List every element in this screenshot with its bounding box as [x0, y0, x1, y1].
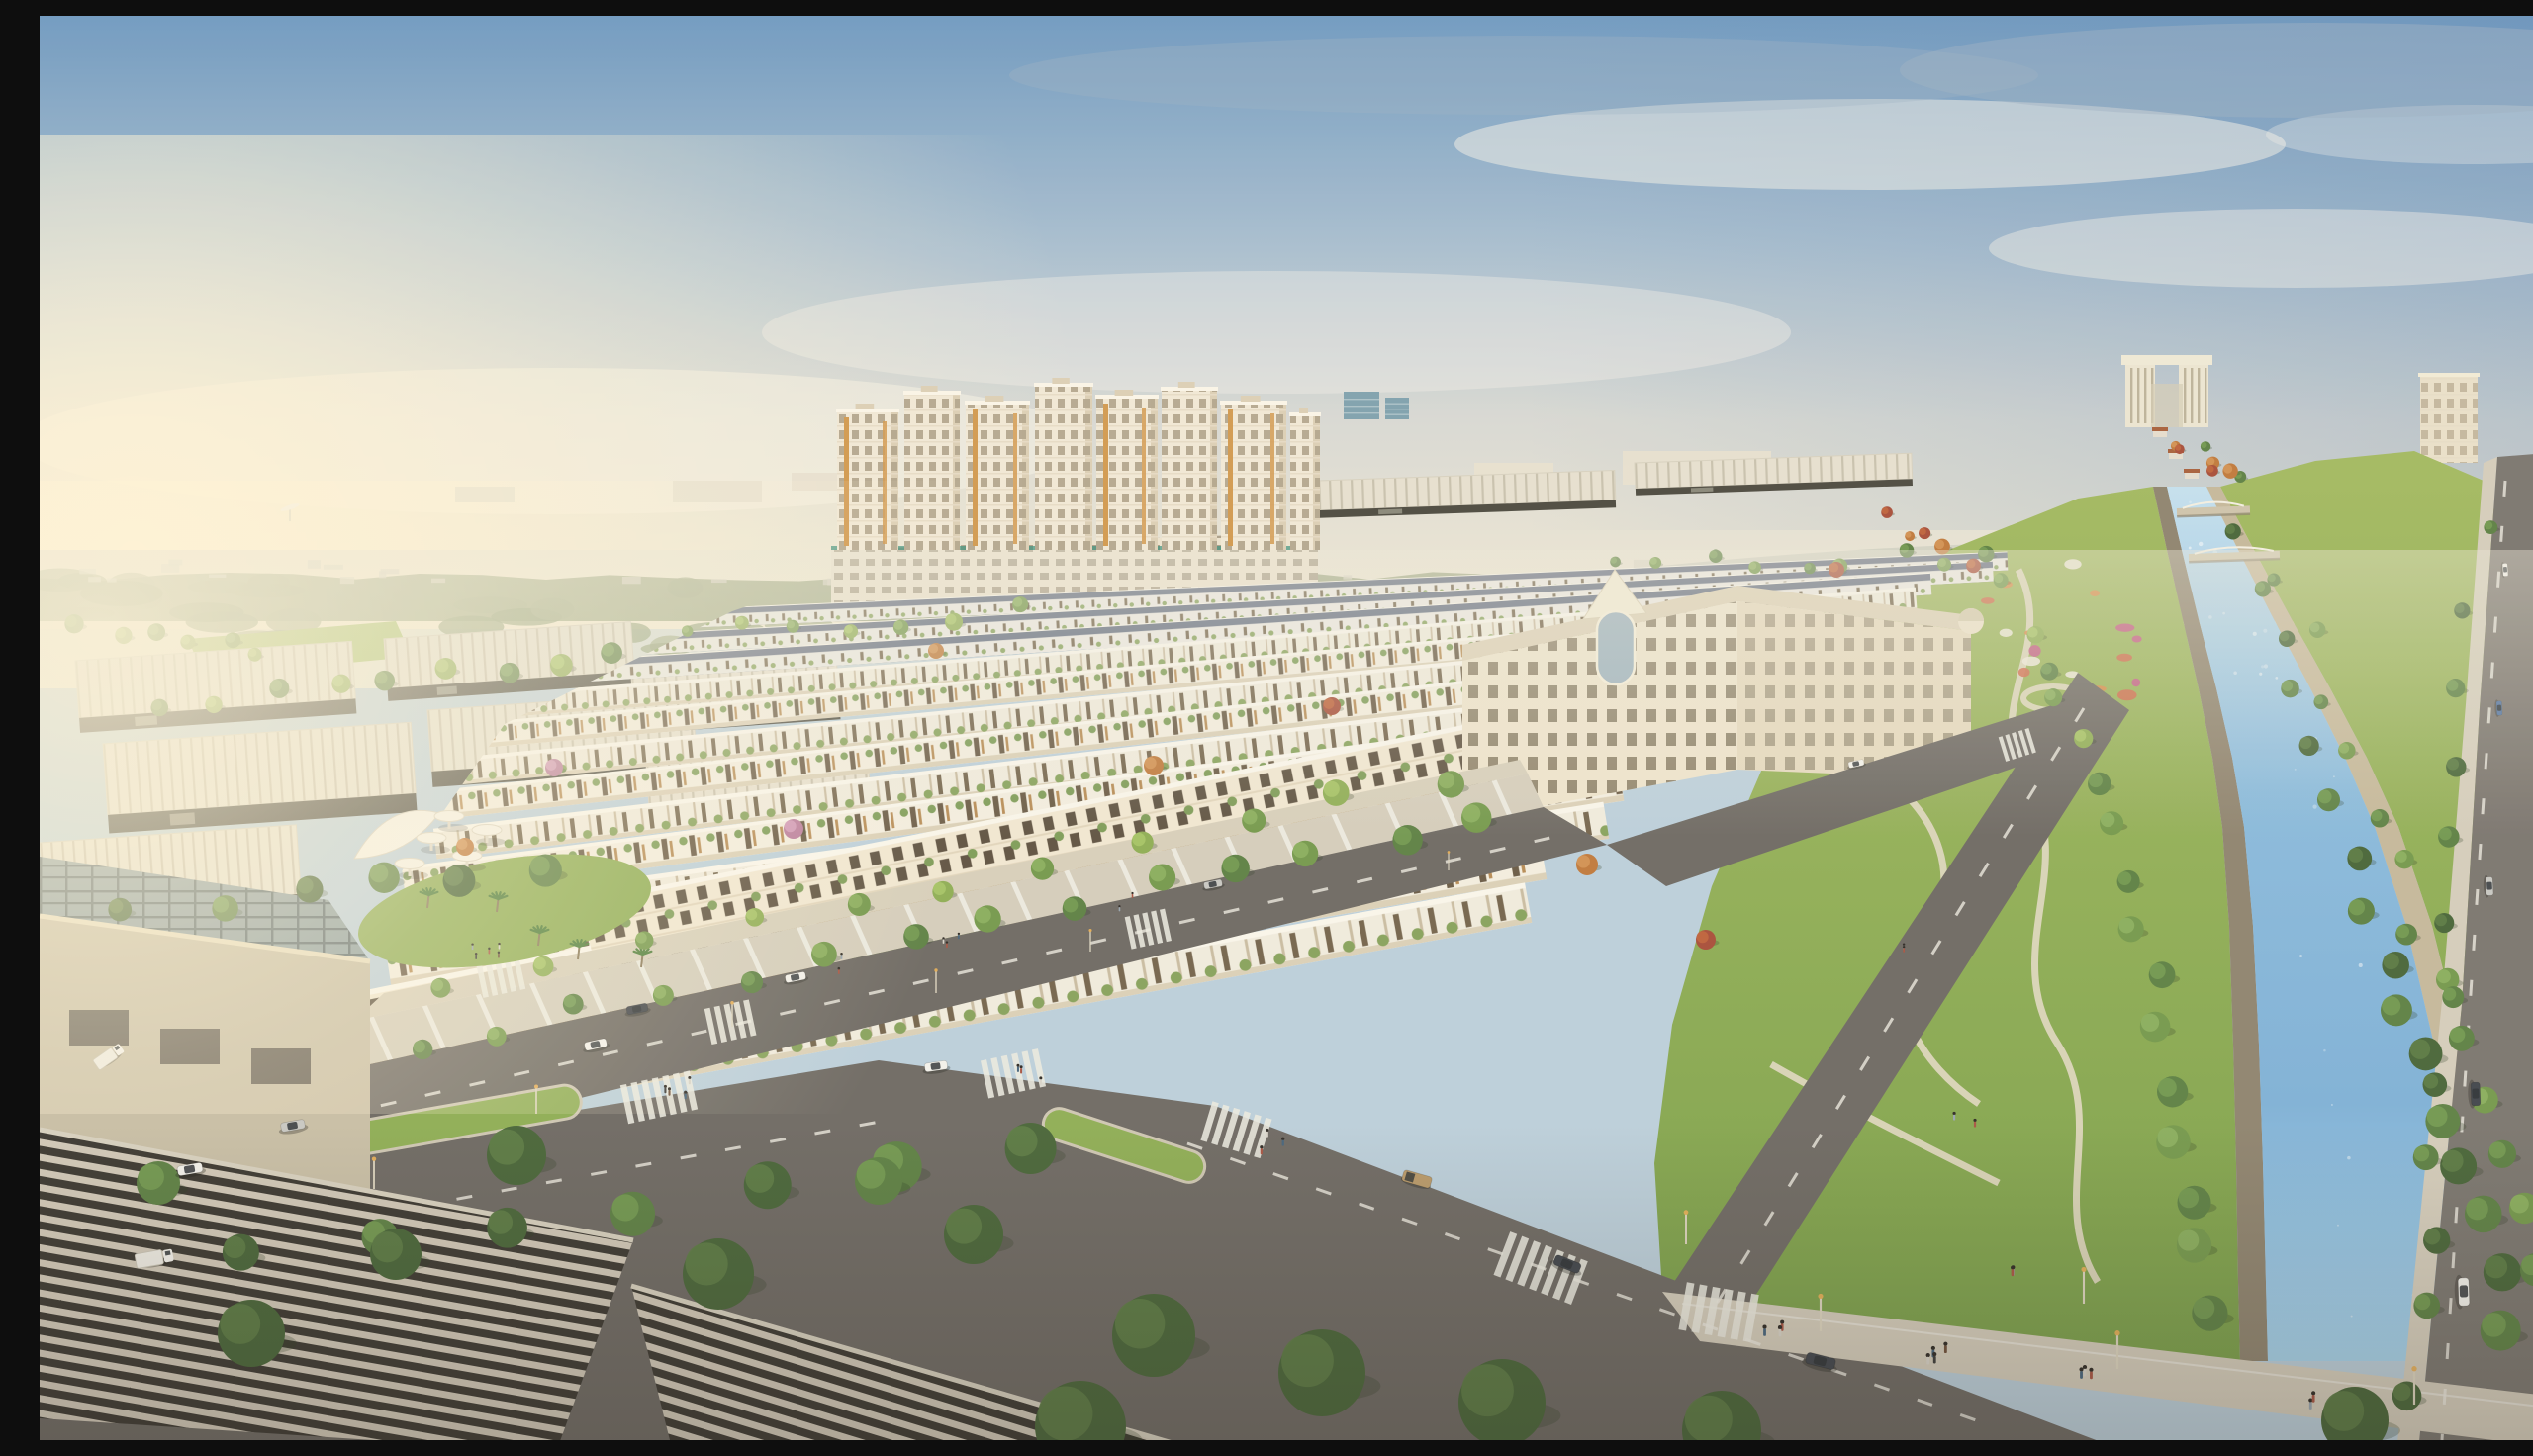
aerial-render: Aerial 3D architectural rendering at haz…	[40, 16, 2533, 1440]
vignette	[40, 16, 2533, 1440]
rendered-image	[40, 16, 2533, 1440]
atmosphere	[40, 16, 2533, 1440]
